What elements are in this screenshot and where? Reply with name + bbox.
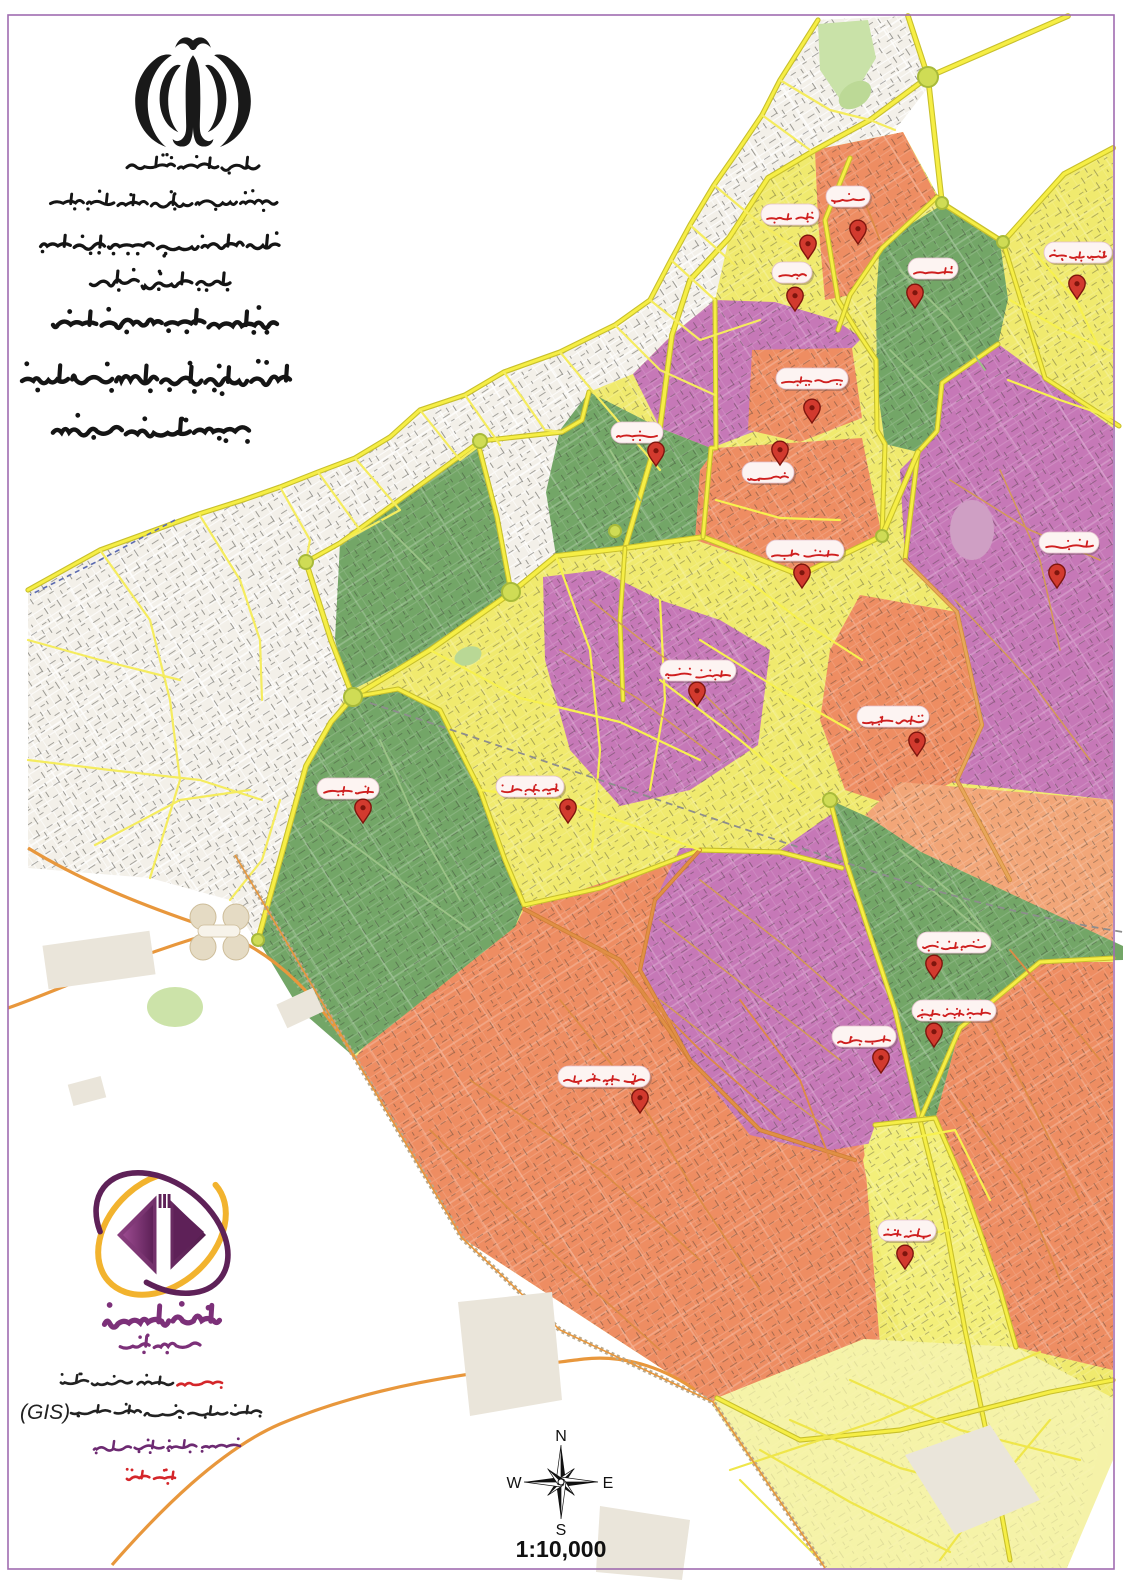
svg-text:N: N (555, 1428, 567, 1445)
svg-text:1:10,000: 1:10,000 (516, 1536, 607, 1562)
svg-text:W: W (506, 1475, 522, 1492)
svg-text:(GIS): (GIS) (20, 1401, 70, 1424)
svg-text:E: E (603, 1475, 614, 1492)
